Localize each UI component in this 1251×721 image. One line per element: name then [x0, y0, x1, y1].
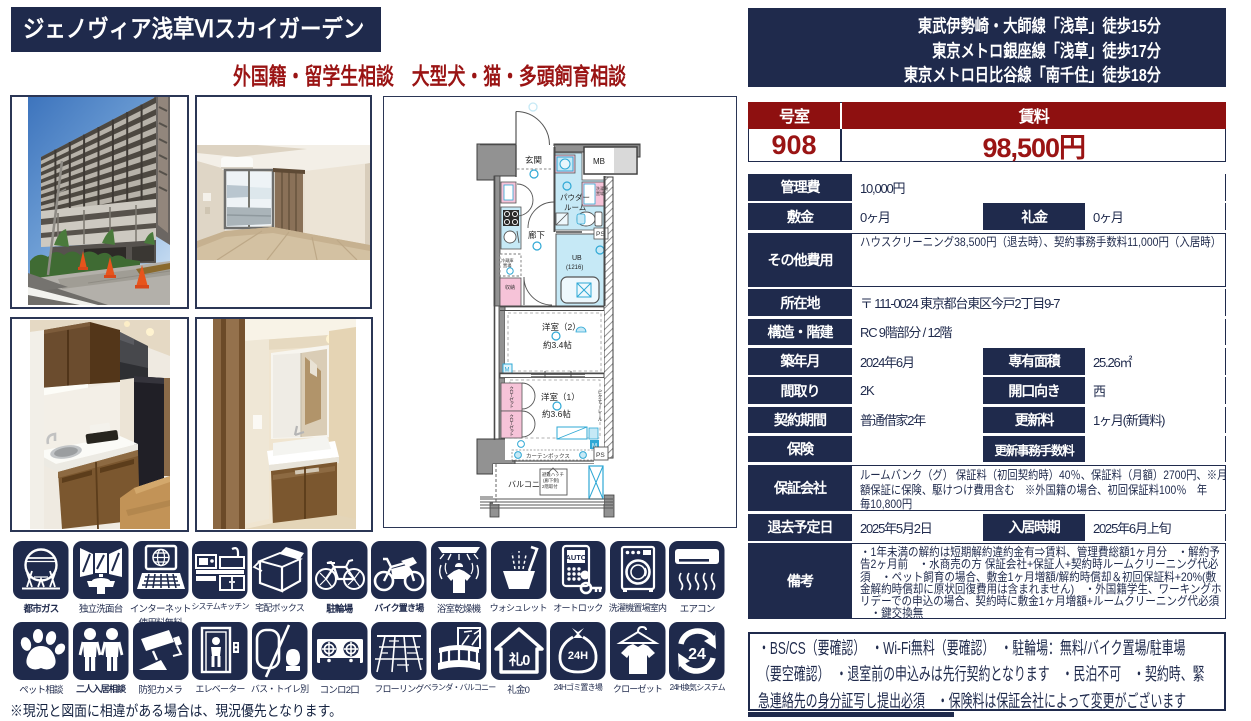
svg-text:2階取付: 2階取付	[542, 483, 558, 490]
svg-text:ピクチャーレール: ピクチャーレール	[597, 390, 602, 422]
svg-text:(廊下側): (廊下側)	[543, 477, 560, 484]
svg-text:洋室（2）: 洋室（2）	[542, 322, 581, 332]
svg-text:(1216): (1216)	[566, 265, 583, 271]
svg-text:AUTO: AUTO	[566, 553, 587, 562]
svg-text:MB: MB	[593, 157, 605, 166]
svg-text:24H: 24H	[568, 650, 588, 662]
svg-text:避難ハッチ: 避難ハッチ	[542, 471, 564, 478]
svg-text:ルーム: ルーム	[564, 203, 586, 212]
svg-text:UB: UB	[572, 255, 582, 262]
svg-text:洋室（1）: 洋室（1）	[541, 392, 580, 402]
svg-text:置場: 置場	[596, 190, 604, 196]
svg-text:礼0: 礼0	[508, 651, 529, 669]
svg-text:玄関: 玄関	[525, 155, 542, 165]
svg-text:パウダー: パウダー	[560, 192, 590, 202]
svg-text:PS: PS	[596, 452, 605, 459]
svg-text:カーテンボックス: カーテンボックス	[526, 452, 570, 460]
svg-text:クローゼット: クローゼット	[509, 386, 515, 409]
svg-text:24: 24	[688, 646, 706, 663]
svg-text:約3.4帖: 約3.4帖	[543, 340, 572, 350]
svg-text:クローゼット: クローゼット	[509, 414, 515, 437]
svg-text:収納: 収納	[505, 284, 515, 291]
svg-text:廊下: 廊下	[528, 230, 546, 240]
